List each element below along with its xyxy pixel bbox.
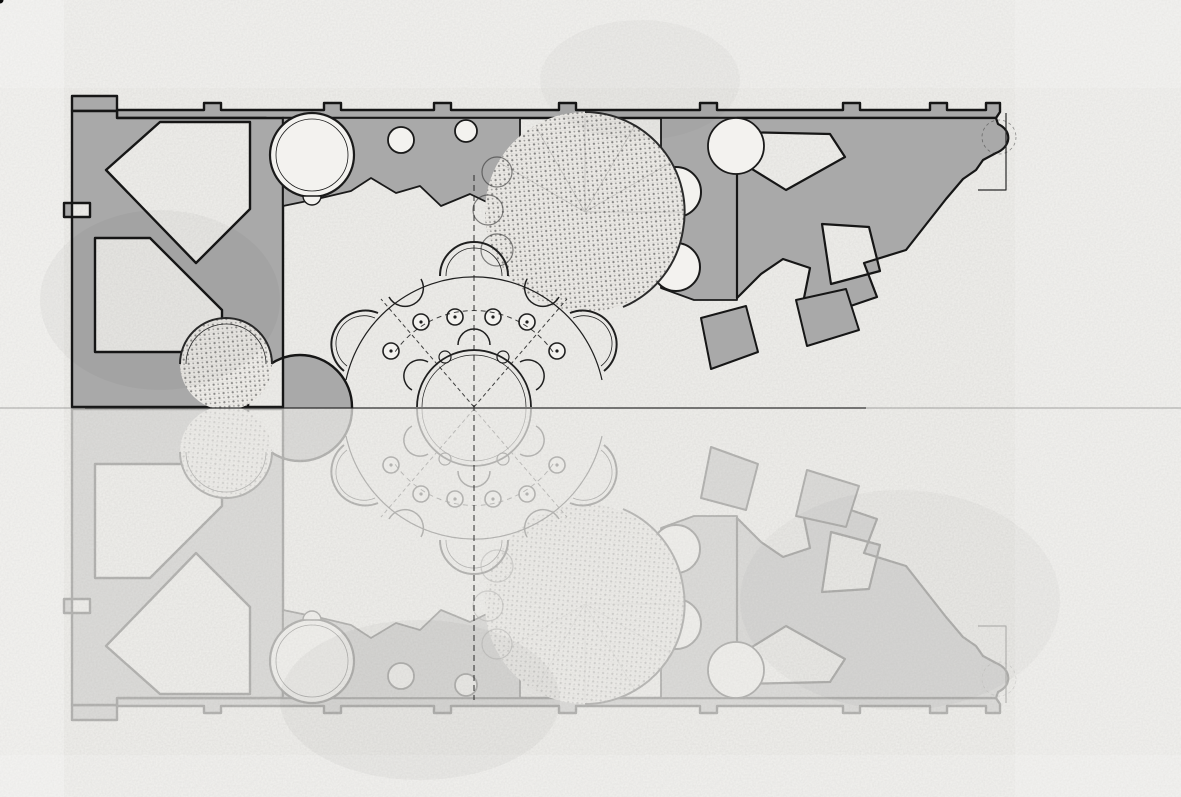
architectural-geometry-drawing (0, 0, 1181, 797)
drawing-sheet (0, 0, 1181, 797)
